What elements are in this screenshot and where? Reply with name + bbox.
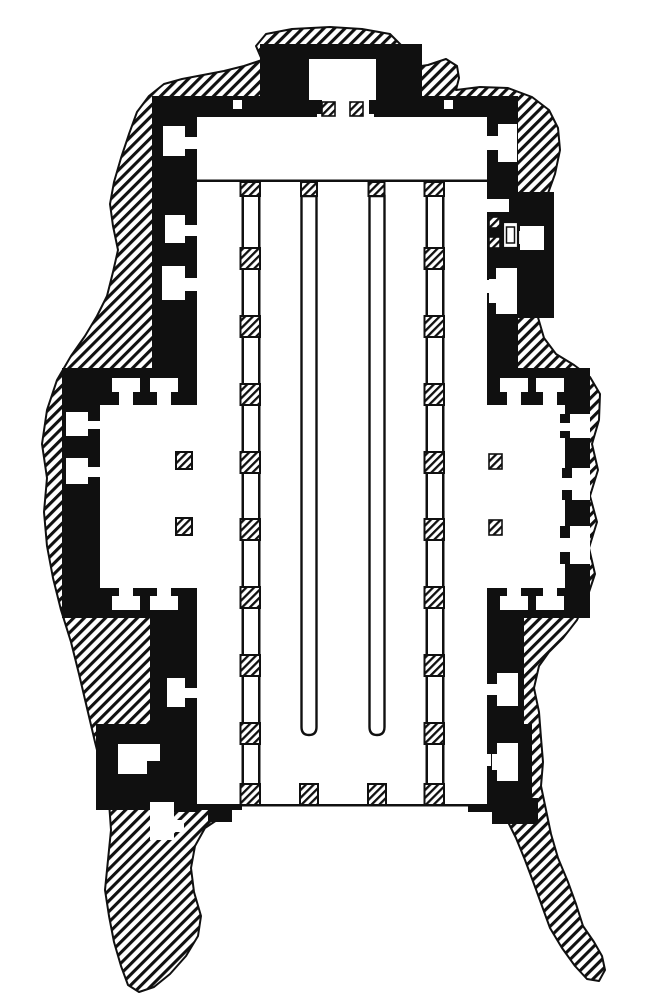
sanctuary-interior bbox=[309, 59, 376, 102]
pillar bbox=[425, 248, 445, 269]
annex-pillar bbox=[489, 237, 500, 248]
niche-tab bbox=[185, 698, 197, 707]
door-stem bbox=[157, 392, 171, 406]
left-chapel-interior bbox=[100, 405, 200, 588]
pillar bbox=[425, 587, 445, 608]
chapel-pillar bbox=[176, 518, 192, 535]
pillar bbox=[425, 723, 445, 744]
door-head bbox=[500, 378, 528, 392]
door-stem bbox=[507, 582, 521, 596]
niche-tab bbox=[185, 126, 197, 137]
pillar bbox=[425, 452, 445, 473]
bottom-left-door-tab bbox=[208, 804, 232, 822]
right-chapel-interior bbox=[455, 405, 565, 588]
altar-block-inner bbox=[507, 227, 515, 243]
sanctuary-jamb-right bbox=[369, 100, 383, 114]
pillar bbox=[300, 784, 318, 805]
niche-tab bbox=[562, 490, 572, 500]
pillar bbox=[241, 655, 261, 676]
plan-page: Ground plan of a rock-cut temple Ground … bbox=[0, 0, 654, 1000]
niche-entry bbox=[481, 684, 491, 696]
door-stem bbox=[543, 582, 557, 596]
niche-tab bbox=[88, 458, 100, 467]
pillar bbox=[368, 784, 386, 805]
pillar bbox=[241, 248, 261, 269]
annex-lower-entry bbox=[481, 280, 491, 293]
niche-tab bbox=[560, 414, 570, 423]
pillar bbox=[425, 316, 445, 337]
pillar bbox=[369, 182, 385, 196]
niche-tab bbox=[185, 291, 197, 300]
sanctuary-jamb-left bbox=[308, 100, 322, 114]
pillar bbox=[425, 519, 445, 540]
chapel-pillar bbox=[176, 452, 192, 469]
niche-tab bbox=[487, 770, 497, 781]
niche-tab bbox=[562, 468, 572, 478]
door-stem bbox=[507, 392, 521, 406]
niche-tab bbox=[487, 303, 496, 314]
niche-tab bbox=[185, 266, 197, 278]
door-head bbox=[536, 378, 564, 392]
pillar bbox=[425, 182, 445, 196]
colonnade-stylobate-line bbox=[258, 181, 261, 806]
door-stem bbox=[543, 392, 557, 406]
niche-tab bbox=[560, 552, 570, 564]
pillar bbox=[241, 384, 261, 405]
niche-tab bbox=[560, 526, 570, 538]
screen-wall-right bbox=[370, 196, 385, 735]
niche-tab bbox=[185, 149, 197, 156]
pillar bbox=[241, 452, 261, 473]
niche-tab bbox=[147, 761, 160, 774]
colonnade-stylobate-line bbox=[442, 181, 445, 806]
pillar bbox=[425, 655, 445, 676]
niche-tab bbox=[560, 431, 570, 438]
pillar bbox=[301, 182, 317, 196]
niche-tab bbox=[487, 268, 496, 279]
pillar bbox=[241, 519, 261, 540]
annex-notch bbox=[487, 199, 509, 212]
niche-tab bbox=[185, 678, 197, 688]
colonnade-stylobate-line bbox=[426, 181, 429, 806]
chapel-pillar bbox=[489, 454, 502, 469]
pillar bbox=[425, 384, 445, 405]
niche-tab bbox=[185, 215, 197, 225]
head-wall-notch bbox=[444, 100, 453, 109]
niche-tab bbox=[487, 695, 497, 706]
sanctuary-pillar bbox=[322, 102, 335, 116]
chapel-pillar bbox=[489, 520, 502, 535]
niche-tab bbox=[487, 743, 497, 754]
pillar bbox=[241, 587, 261, 608]
sanctuary-pillar bbox=[350, 102, 363, 116]
floor-plan-drawing: Ground plan of a rock-cut temple bbox=[0, 0, 654, 1000]
niche-tab bbox=[185, 236, 197, 243]
door-head bbox=[150, 596, 178, 610]
door-head bbox=[536, 596, 564, 610]
door-head bbox=[112, 378, 140, 392]
pillar bbox=[241, 316, 261, 337]
door-head bbox=[500, 596, 528, 610]
head-wall-notch bbox=[233, 100, 242, 109]
niche-tab bbox=[487, 124, 498, 136]
niche-entry bbox=[481, 753, 491, 766]
door-stem bbox=[119, 582, 133, 596]
annex-pillar bbox=[489, 217, 500, 228]
niche-tab bbox=[88, 429, 100, 436]
pillar bbox=[425, 784, 445, 805]
pillar bbox=[241, 723, 261, 744]
niche-tab bbox=[88, 412, 100, 421]
pillar bbox=[241, 784, 261, 805]
door-head bbox=[112, 596, 140, 610]
right-spur-cap-mass bbox=[492, 798, 538, 824]
forecourt-passage bbox=[150, 802, 174, 840]
door-stem bbox=[119, 392, 133, 406]
screen-wall-left bbox=[302, 196, 317, 735]
annex-cell bbox=[520, 226, 544, 250]
pillar bbox=[241, 182, 261, 196]
niche-tab bbox=[487, 673, 497, 684]
niche-tab bbox=[487, 150, 498, 162]
door-head bbox=[150, 378, 178, 392]
niche-tab bbox=[88, 477, 100, 484]
door-stem bbox=[157, 582, 171, 596]
colonnade-stylobate-line bbox=[242, 181, 245, 806]
forecourt-passage-notch bbox=[172, 820, 184, 832]
